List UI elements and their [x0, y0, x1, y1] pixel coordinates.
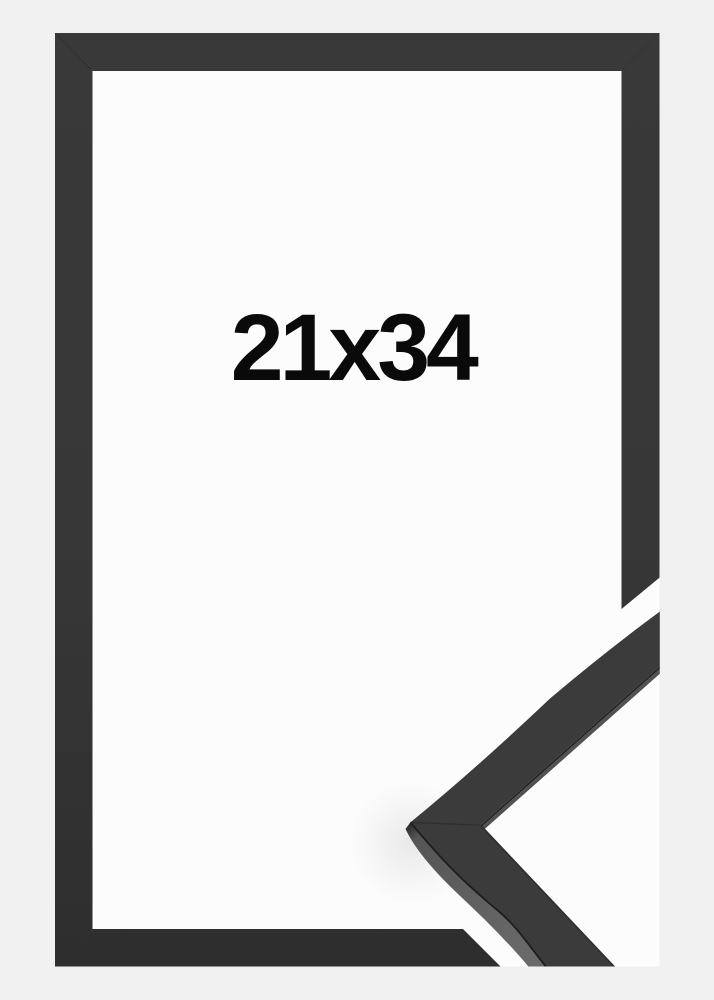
svg-text:21x34: 21x34 — [231, 295, 479, 401]
